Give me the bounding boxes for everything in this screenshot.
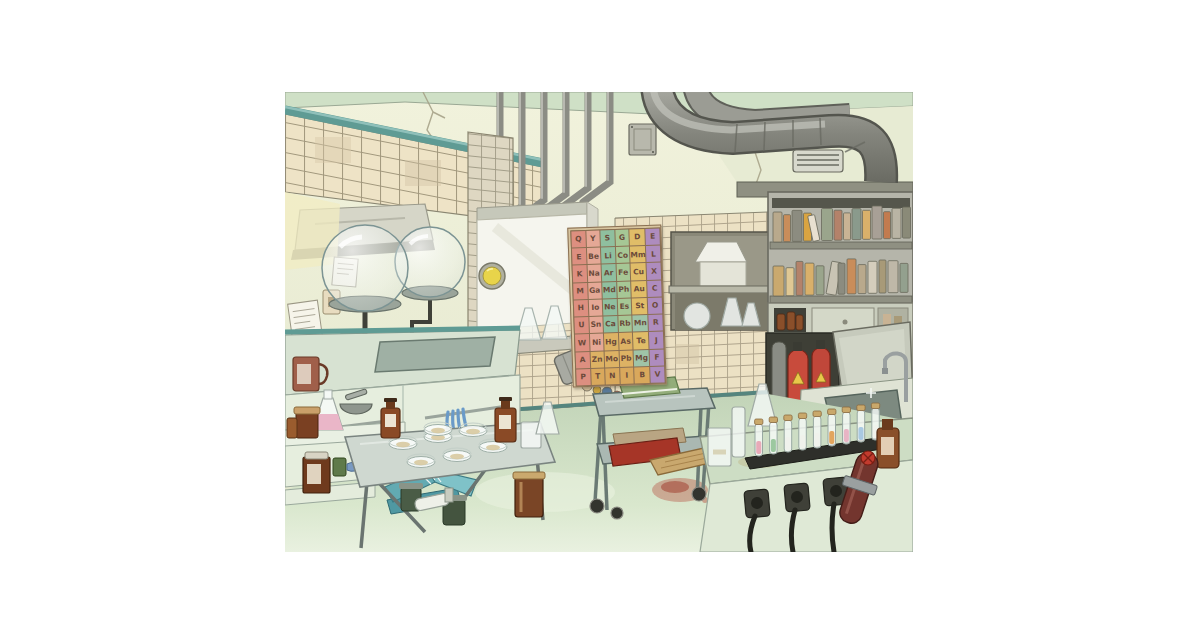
poster-cell: Md	[602, 282, 616, 299]
poster-cell: Q	[571, 231, 585, 248]
poster-cell: Ga	[588, 282, 602, 299]
books-row-1	[773, 206, 911, 242]
periodic-table-poster: QYSGDEEBeLiCoMmLKNaArFeCuXMGaMdPhAuCHIoN…	[567, 224, 667, 387]
poster-cell: A	[576, 352, 590, 369]
junction-box	[629, 124, 656, 155]
poster-cell: Be	[586, 248, 600, 265]
poster-cell: M	[573, 283, 587, 300]
laboratory-illustration: QYSGDEEBeLiCoMmLKNaArFeCuXMGaMdPhAuCHIoN…	[285, 92, 913, 552]
poster-cell: J	[649, 332, 663, 349]
poster-cell: E	[572, 248, 586, 265]
poster-cell: Sn	[589, 317, 603, 334]
poster-cell: B	[634, 367, 650, 384]
poster-cell: Mg	[634, 349, 650, 366]
poster-cell: Mm	[630, 246, 646, 263]
poster-cell: D	[630, 229, 646, 246]
poster-cell: Mo	[605, 351, 619, 368]
poster-cell: Co	[616, 247, 630, 264]
poster-cell: Y	[586, 231, 600, 248]
poster-cell: Na	[587, 265, 601, 282]
poster-cell: N	[605, 368, 619, 385]
poster-cell: U	[574, 317, 588, 334]
poster-cell: Mn	[633, 315, 649, 332]
poster-cell: S	[600, 230, 614, 247]
cubby-bottles	[777, 312, 803, 330]
poster-cell: Rb	[618, 316, 632, 333]
poster-cell: Ph	[617, 281, 631, 298]
poster-cell: F	[650, 349, 664, 366]
poster-grid: QYSGDEEBeLiCoMmLKNaArFeCuXMGaMdPhAuCHIoN…	[570, 227, 665, 386]
sink-basin-left	[375, 337, 495, 372]
poster-cell: P	[576, 369, 590, 386]
poster-cell: Ar	[602, 264, 616, 281]
poster-cell: St	[632, 298, 648, 315]
porthole-window	[479, 263, 505, 289]
poster-cell: W	[575, 334, 589, 351]
poster-cell: X	[647, 263, 661, 280]
poster-cell: Zn	[590, 351, 604, 368]
poster-cell: G	[615, 230, 629, 247]
poster-cell: Pb	[619, 350, 633, 367]
vent-grille	[793, 150, 843, 172]
poster-cell: H	[574, 300, 588, 317]
poster-cell: Ni	[590, 334, 604, 351]
poster-cell: Ne	[603, 299, 617, 316]
poster-cell: V	[651, 366, 665, 383]
poster-cell: C	[648, 280, 662, 297]
poster-cell: Au	[631, 281, 647, 298]
poster-cell: Ca	[603, 316, 617, 333]
poster-cell: R	[649, 315, 663, 332]
poster-cell: O	[648, 297, 662, 314]
lamp-shade	[695, 242, 747, 286]
poster-cell: E	[646, 228, 660, 245]
poster-cell: Fe	[616, 264, 630, 281]
wall-niche	[669, 232, 779, 330]
poster-cell: Io	[588, 299, 602, 316]
poster-cell: T	[591, 368, 605, 385]
poster-cell: Cu	[631, 263, 647, 280]
page: QYSGDEEBeLiCoMmLKNaArFeCuXMGaMdPhAuCHIoN…	[0, 0, 1200, 630]
poster-cell: K	[573, 265, 587, 282]
poster-cell: I	[620, 367, 634, 384]
poster-cell: Te	[633, 332, 649, 349]
poster-cell: Hg	[604, 333, 618, 350]
poster-cell: Li	[601, 247, 615, 264]
poster-cell: L	[646, 246, 660, 263]
poster-cell: Es	[617, 298, 631, 315]
poster-cell: As	[619, 333, 633, 350]
